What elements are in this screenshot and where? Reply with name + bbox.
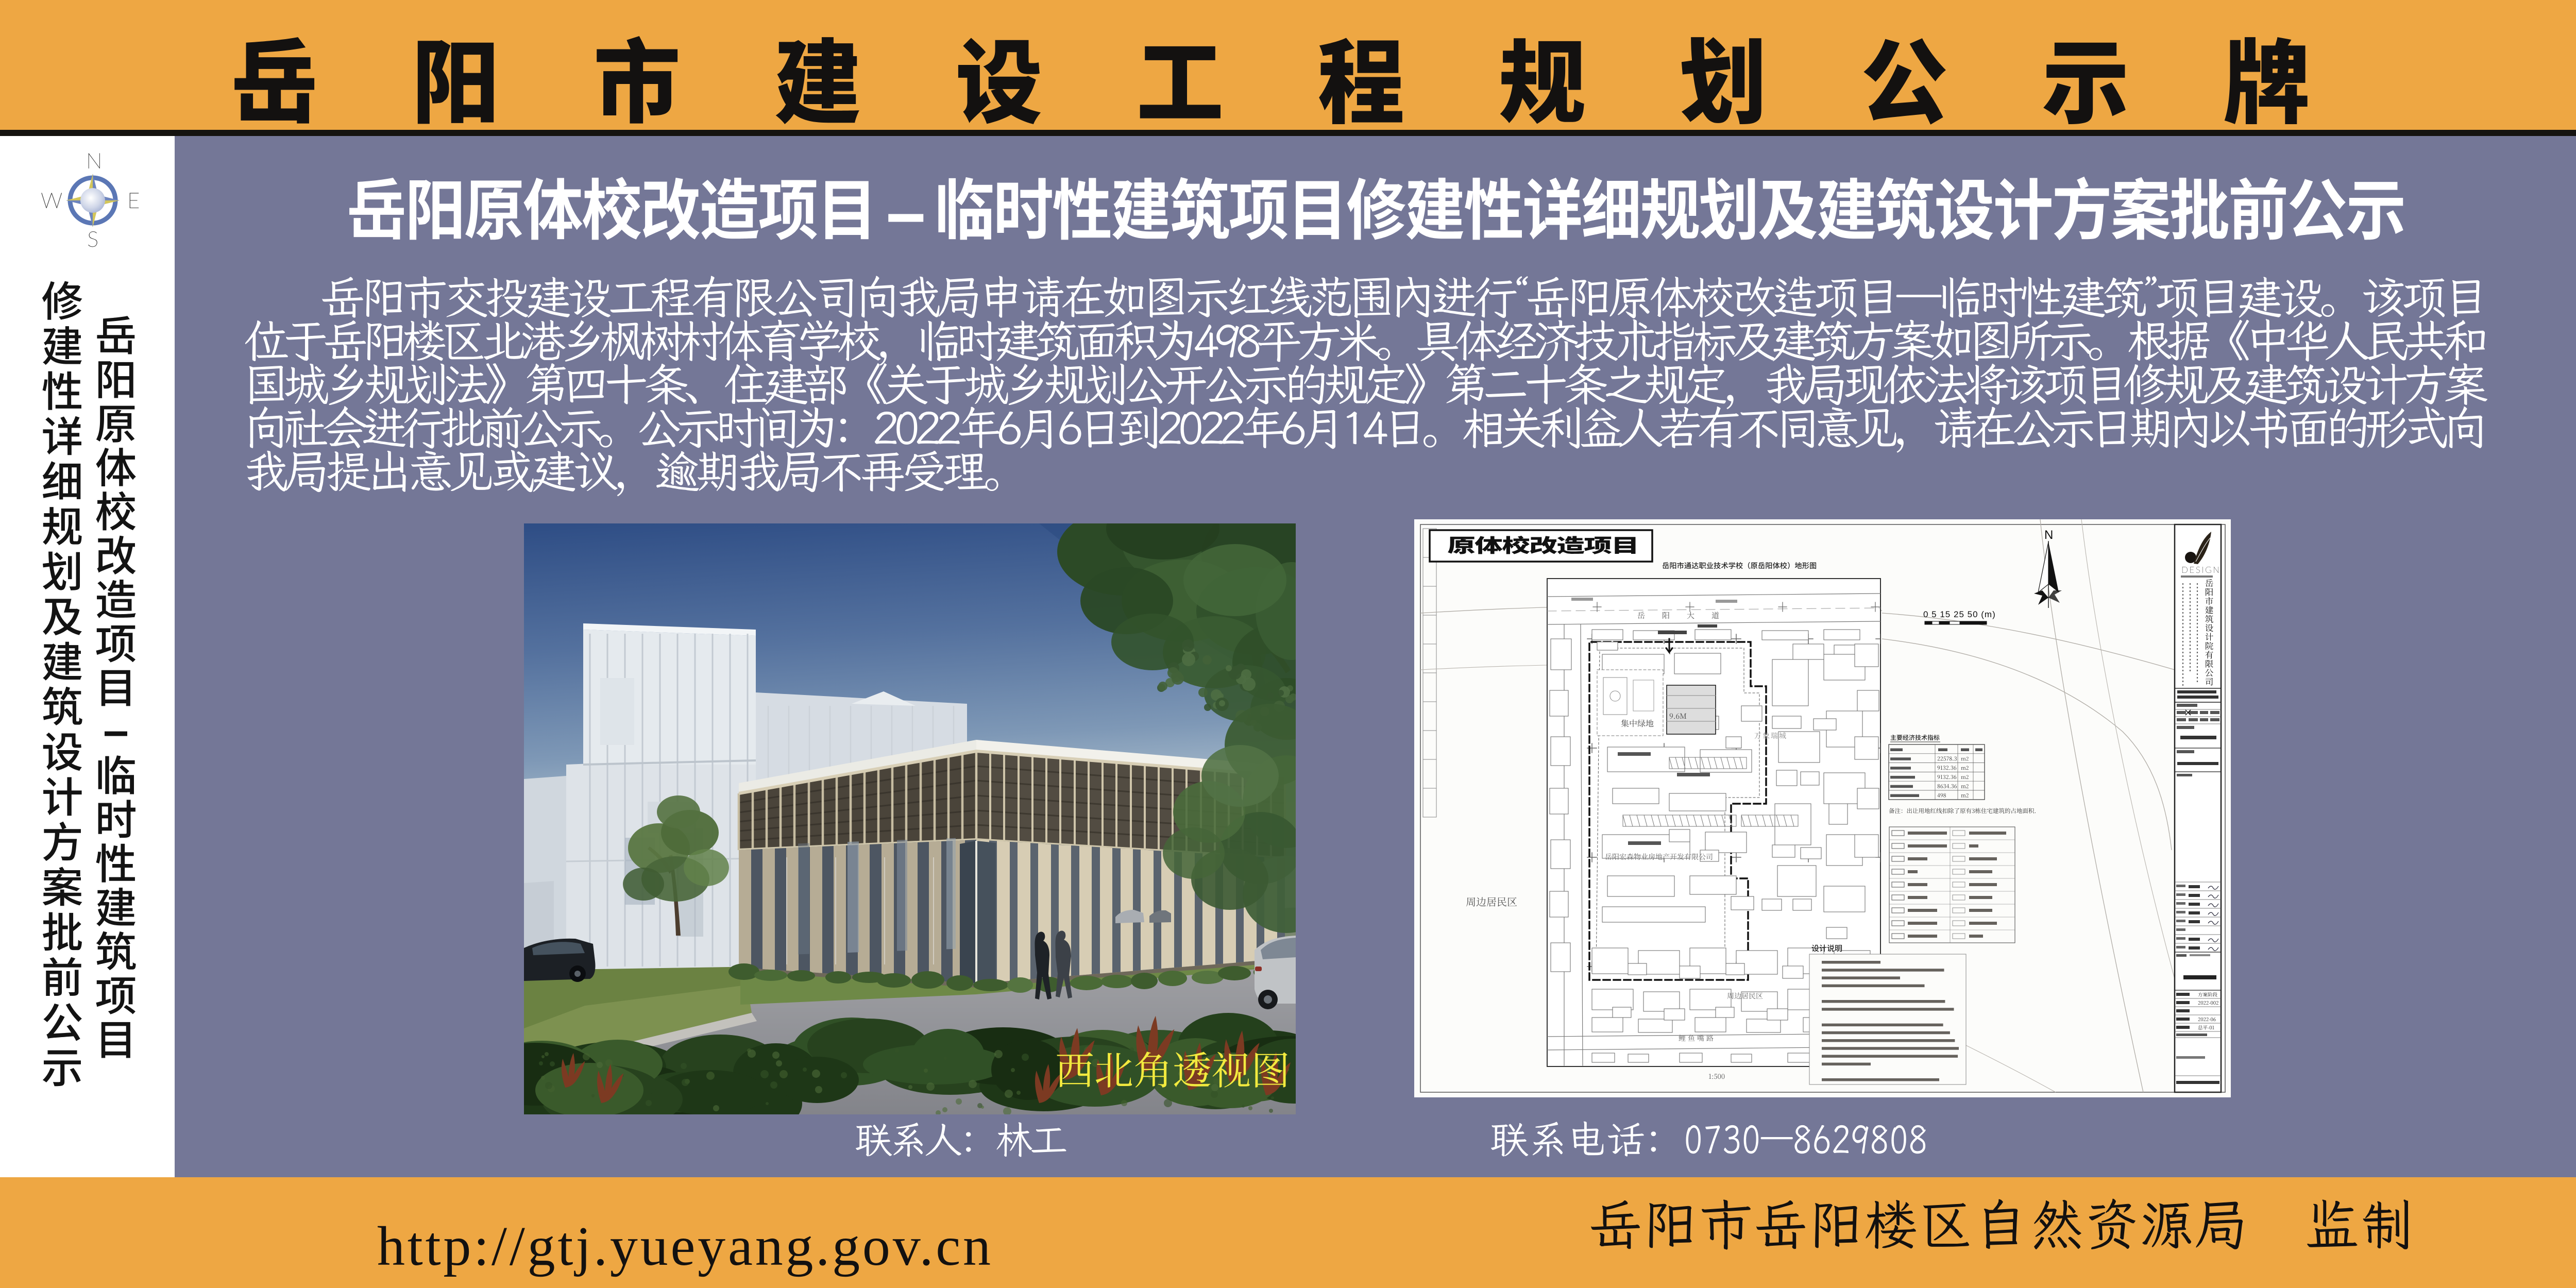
svg-text:0 5 15 25 50 (m): 0 5 15 25 50 (m) [1923,609,1996,619]
svg-text:http://gtj.yueyang.gov.cn: http://gtj.yueyang.gov.cn [377,1216,993,1277]
svg-text:N: N [2044,528,2053,542]
